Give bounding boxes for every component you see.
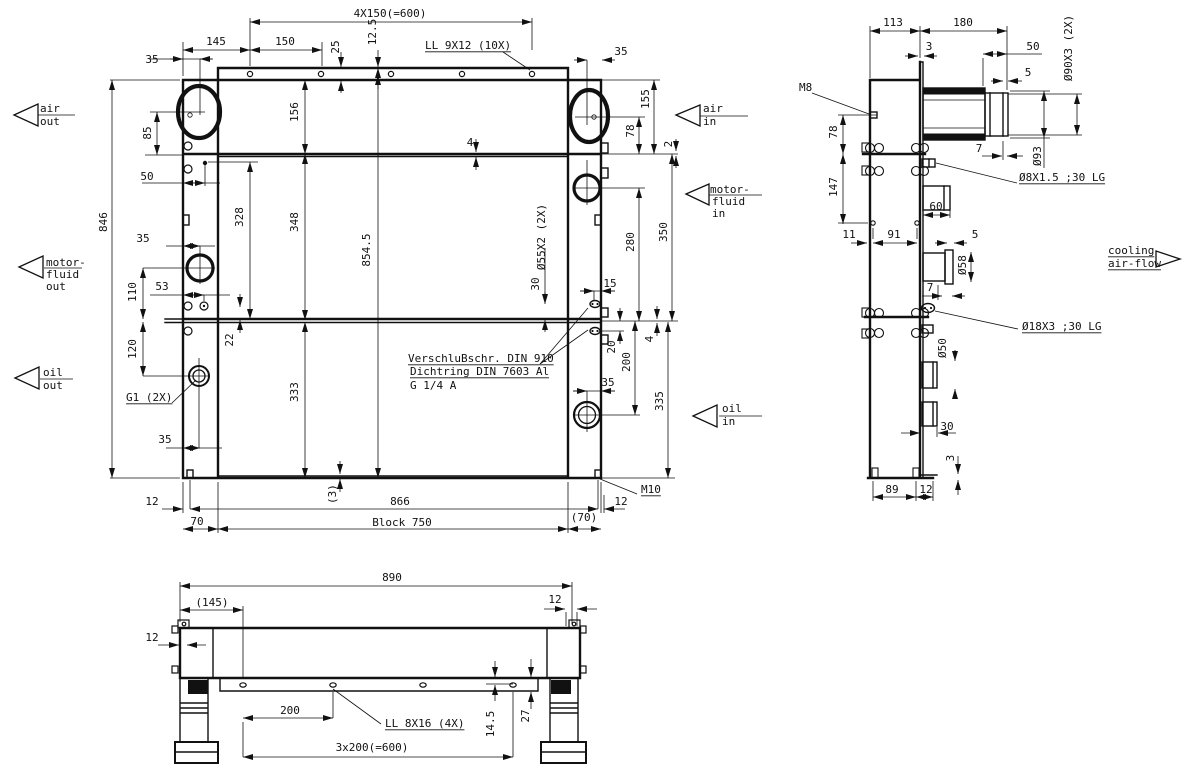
side_view-label: 7 [927,281,934,294]
front_view-label: 4 [643,335,656,342]
bottom_view-label: 3x200(=600) [336,741,409,754]
front_view-label: Dichtring DIN 7603 Al [410,365,549,378]
front-dimension-lines [112,22,676,529]
side_view-label: 3 [944,455,957,462]
front_view-label: 70 [190,515,203,528]
front_view-label: 335 [653,391,666,411]
front_view-label: VerschluBschr. DIN 910 [408,352,554,365]
front_view-label: Block 750 [372,516,432,529]
side_view-label: 91 [887,228,900,241]
bottom-dimension-lines [158,586,597,757]
bottom_view-label: 12 [548,593,561,606]
front_view-label: out [40,115,60,128]
side_view-label: M8 [799,81,812,94]
fan-assembly [923,88,1008,140]
side_view-label: air-flow [1108,257,1161,270]
bottom-view: 890(145)1212200LL 8X16 (4X)14.5273x200(=… [145,571,597,763]
front_view-label: 15 [603,277,616,290]
side_view-label: Ø8X1.5 ;30 LG [1019,171,1105,184]
front-view: 4X150(=600)12.52514515035LL 9X12 (10X)35… [14,7,762,533]
oil-out-arrow-icon [15,367,39,389]
front_view-label: 4X150(=600) [354,7,427,20]
small-holes [184,71,535,335]
front_view-label: G1 (2X) [126,391,172,404]
front_view-label: 120 [126,339,139,359]
front_view-label: 35 [136,232,149,245]
bottom_view-label: 12 [145,631,158,644]
front_view-label: 4 [467,136,474,149]
front_view-label: 2 [662,141,675,148]
bottom_view-label: 27 [519,709,532,722]
front_view-label: 78 [624,124,637,137]
side_view-label: 12 [919,483,932,496]
side_view-label: 5 [972,228,979,241]
side_view-label: 113 [883,16,903,29]
front_view-label: 110 [126,282,139,302]
front_view-label: 854.5 [360,233,373,266]
side_view-label: 60 [929,200,942,213]
front_view-label: 35 [158,433,171,446]
side_view-label: 11 [842,228,855,241]
side-view: 1131803505Ø90X3 (2X)M8781477Ø93Ø8X1.5 ;3… [799,15,1180,501]
front_view-label: 30 [529,277,542,290]
front_view-label: (3) [326,484,339,504]
air-in-arrow-icon [676,105,700,126]
side-view-labels: 1131803505Ø90X3 (2X)M8781477Ø93Ø8X1.5 ;3… [799,15,1161,496]
front_view-label: 155 [639,89,652,109]
front_view-label: 50 [140,170,153,183]
bottom_view-label: 14.5 [484,711,497,738]
front_view-label: 350 [657,222,670,242]
front_view-label: 150 [275,35,295,48]
front_view-label: M10 [641,483,661,496]
front_view-label: 156 [288,102,301,122]
front_view-label: LL 9X12 (10X) [425,39,511,52]
side_view-label: 50 [1026,40,1039,53]
bottom_view-label: 200 [280,704,300,717]
front_view-label: in [712,207,725,220]
front-tabs [183,143,608,478]
side_view-label: 30 [940,420,953,433]
front_view-label: 35 [614,45,627,58]
front_view-label: air [40,102,60,115]
front_view-label: 12.5 [366,19,379,46]
side_view-label: 147 [827,177,840,197]
side_view-label: Ø90X3 (2X) [1062,15,1075,81]
front_view-label: in [703,115,716,128]
side_view-label: Ø93 [1031,146,1044,166]
side_view-label: 3 [926,40,933,53]
bottom_view-label: LL 8X16 (4X) [385,717,464,730]
side_view-label: Ø58 [956,255,969,275]
air-out-arrow-icon [14,104,38,126]
motor-fluid-out-arrow-icon [19,256,43,278]
front_view-label: 280 [624,232,637,252]
bottom_view-label: (145) [195,596,228,609]
front_view-label: 85 [141,126,154,139]
front_view-label: (70) [571,511,598,524]
front_view-label: 35 [145,53,158,66]
technical-drawing-sheet: 4X150(=600)12.52514515035LL 9X12 (10X)35… [0,0,1199,773]
front_view-label: 866 [390,495,410,508]
screw-plugs [590,301,600,335]
front_view-label: 348 [288,212,301,232]
front_view-label: 328 [233,207,246,227]
front_view-label: 12 [614,495,627,508]
bottom-secondary [175,628,586,752]
side_view-label: 5 [1025,66,1032,79]
front_view-label: out [43,379,63,392]
front-outline [183,68,601,478]
front_view-label: oil [43,366,63,379]
side-bosses [862,143,929,478]
front_view-label: in [722,415,735,428]
air-port-flanges [178,86,608,142]
bottom-outline [180,628,580,678]
front_view-label: 846 [97,212,110,232]
front_view-label: 333 [288,382,301,402]
front_view-label: oil [722,402,742,415]
side_view-label: cooling [1108,244,1154,257]
drawing-canvas: 4X150(=600)12.52514515035LL 9X12 (10X)35… [0,0,1199,773]
front_view-label: out [46,280,66,293]
front_view-label: 200 [620,352,633,372]
oil-in-arrow-icon [693,405,717,427]
side-ports [870,112,953,426]
front_view-label: 145 [206,35,226,48]
bottom-extension-lines [180,582,577,757]
side_view-label: Ø50 [936,338,949,358]
front_view-label: G 1/4 A [410,379,457,392]
front_view-label: 12 [145,495,158,508]
side_view-label: 180 [953,16,973,29]
front_view-label: 22 [223,333,236,346]
bottom_view-label: 890 [382,571,402,584]
front_view-label: 20 [605,340,618,353]
front_view-label: Ø55X2 (2X) [535,204,548,270]
front_view-label: 53 [155,280,168,293]
motor-fluid-in-arrow-icon [686,184,709,205]
side_view-label: Ø18X3 ;30 LG [1022,320,1101,333]
side_view-label: 78 [827,125,840,138]
front-extension-lines [38,18,762,533]
side_view-label: 7 [976,142,983,155]
side_view-label: 89 [885,483,898,496]
front_view-label: air [703,102,723,115]
front_view-label: 35 [601,376,614,389]
front_view-label: 25 [329,40,342,53]
